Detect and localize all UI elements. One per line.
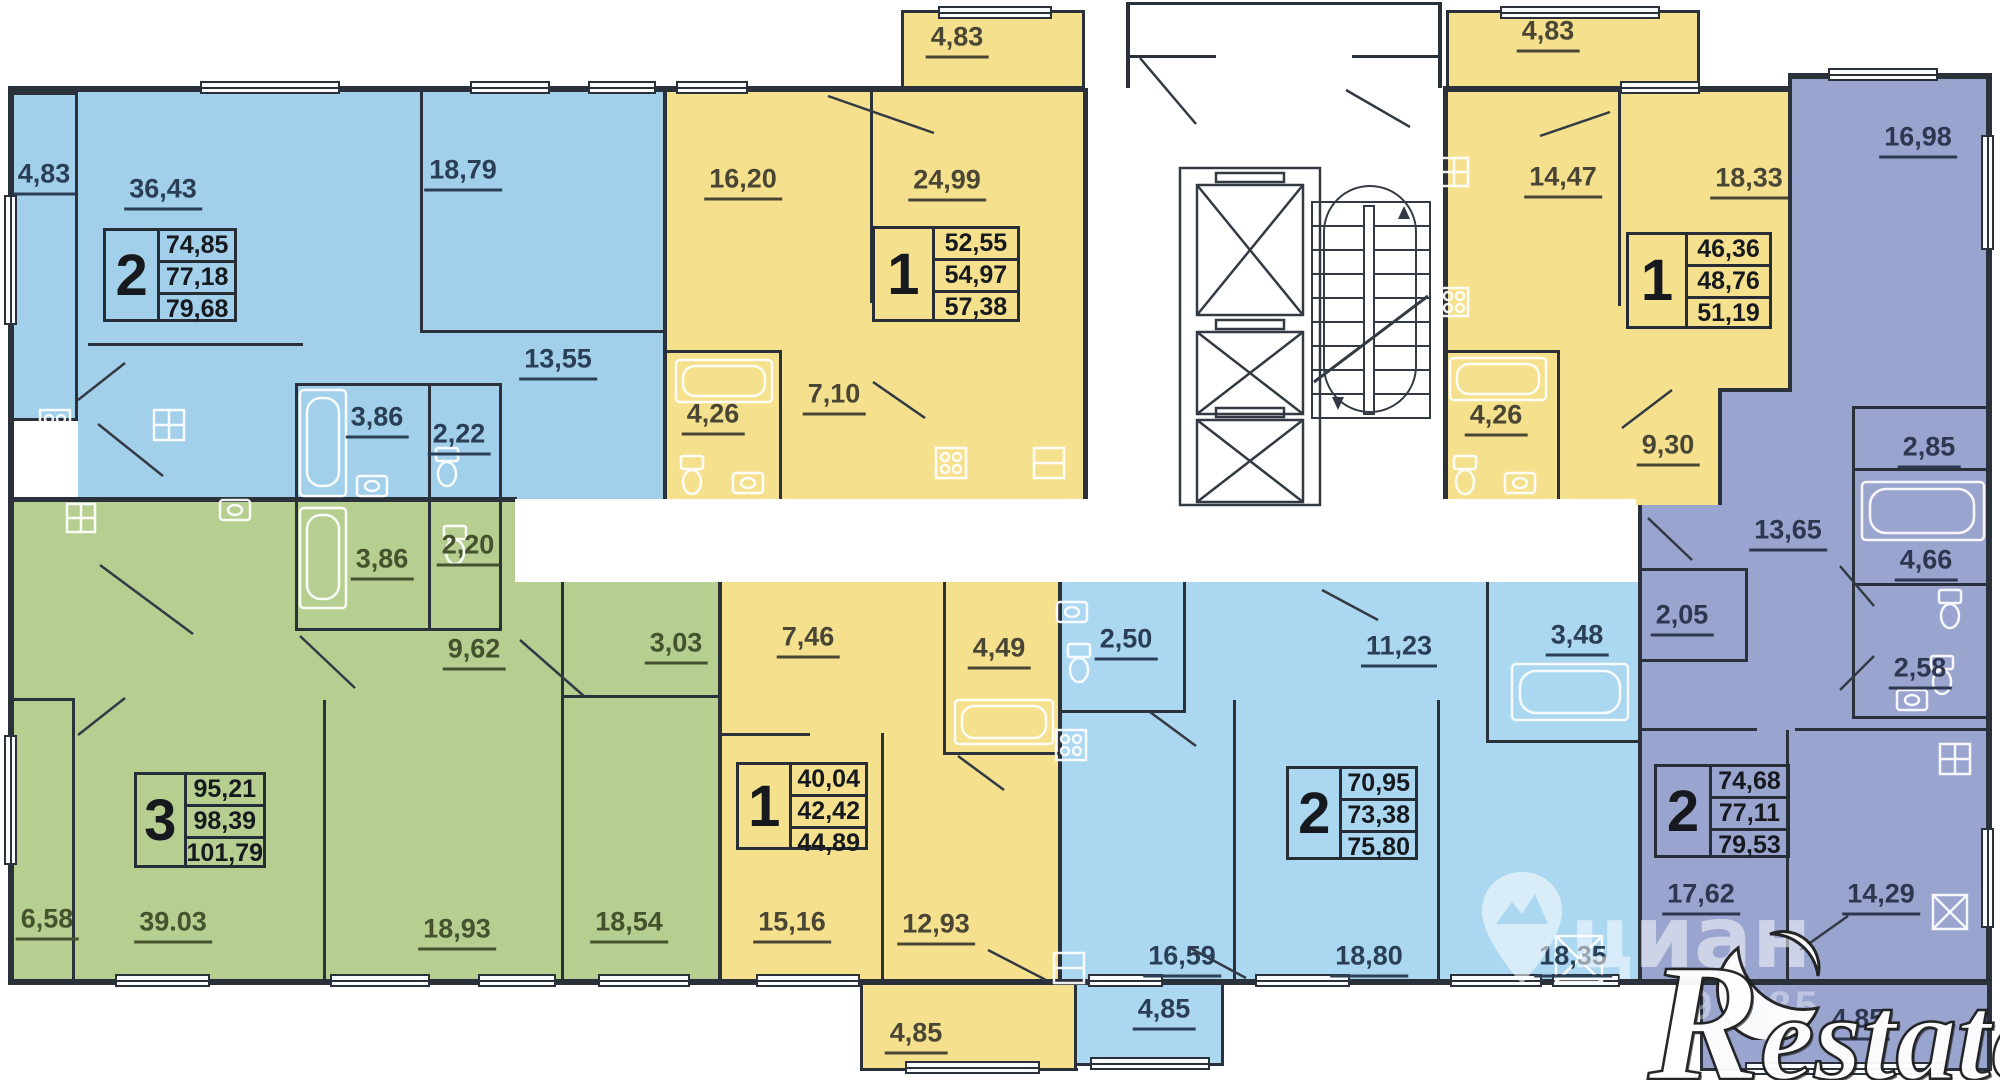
- room-area-label: 3,03: [645, 628, 708, 665]
- stove-icon: [1054, 953, 1084, 983]
- rooms-count: 1: [875, 229, 935, 319]
- room-area-label: 4,83: [1517, 16, 1580, 53]
- area-total: 48,76: [1688, 267, 1769, 299]
- area-full: 51,19: [1688, 299, 1769, 328]
- room-area-label: 3,86: [346, 402, 409, 439]
- elevator-shafts-icon: [1180, 168, 1320, 505]
- sink-icon: [1505, 473, 1535, 493]
- area-total: 77,11: [1712, 799, 1787, 831]
- area-total: 77,18: [160, 263, 234, 295]
- restate-watermark-text: Restate: [1648, 948, 2000, 1080]
- room-area-label: 18,80: [1330, 941, 1408, 978]
- stove-icon: [1440, 158, 1468, 186]
- room-area-label: 2,85: [1898, 432, 1961, 469]
- sink-icon: [1057, 602, 1087, 622]
- room-area-label: 2,05: [1651, 600, 1714, 637]
- toilet-icon: [1939, 590, 1961, 628]
- area-living: 52,55: [935, 229, 1017, 261]
- room-area-label: 9,62: [443, 634, 506, 671]
- apartment-info-box: 2 70,95 73,38 75,80: [1286, 766, 1418, 860]
- room-area-label: 18,33: [1710, 163, 1788, 200]
- sink-icon: [357, 476, 387, 496]
- stove-icon: [1940, 744, 1970, 774]
- room-area-label: 15,16: [753, 907, 831, 944]
- apartment-info-box: 1 52,55 54,97 57,38: [872, 226, 1020, 322]
- room-area-label: 18,93: [418, 914, 496, 951]
- area-living: 95,21: [187, 775, 263, 807]
- room-area-label: 7,46: [777, 622, 840, 659]
- area-full: 101,79: [187, 839, 263, 868]
- stove-icon: [40, 410, 70, 440]
- rooms-count: 2: [1289, 769, 1342, 857]
- room-area-label: 14,29: [1842, 879, 1920, 916]
- room-area-label: 4,85: [885, 1018, 948, 1055]
- cian-pin-icon: [1482, 872, 1562, 993]
- area-living: 74,68: [1712, 767, 1787, 799]
- area-total: 98,39: [187, 807, 263, 839]
- room-area-label: 4,83: [13, 159, 76, 196]
- stove-icon: [936, 448, 966, 478]
- room-area-label: 3,48: [1546, 620, 1609, 657]
- room-area-label: 18,79: [424, 155, 502, 192]
- room-area-label: 12,93: [897, 909, 975, 946]
- room-area-label: 18,54: [590, 907, 668, 944]
- area-living: 40,04: [792, 765, 865, 797]
- area-living: 74,85: [160, 231, 234, 263]
- room-area-label: 13,55: [519, 344, 597, 381]
- apartment-info-box: 1 46,36 48,76 51,19: [1626, 232, 1772, 329]
- room-area-label: 4,26: [1465, 400, 1528, 437]
- room-area-label: 4,83: [926, 22, 989, 59]
- area-full: 75,80: [1342, 833, 1415, 862]
- apartment-info-box: 3 95,21 98,39 101,79: [134, 772, 266, 868]
- room-area-label: 16,20: [704, 164, 782, 201]
- room-area-label: 2,22: [428, 419, 491, 456]
- room-area-label: 4,49: [968, 633, 1031, 670]
- apartment-info-box: 2 74,85 77,18 79,68: [103, 228, 237, 322]
- apartment-info-box: 1 40,04 42,42 44,89: [736, 762, 868, 850]
- room-area-label: 36,43: [124, 174, 202, 211]
- room-area-label: 4,85: [1133, 994, 1196, 1031]
- area-total: 42,42: [792, 797, 865, 829]
- area-full: 44,89: [792, 829, 865, 858]
- stove-icon: [1034, 448, 1064, 478]
- room-area-label: 4,66: [1895, 545, 1958, 582]
- room-area-label: 9,30: [1637, 430, 1700, 467]
- rooms-count: 1: [739, 765, 792, 847]
- stove-icon: [1440, 288, 1468, 316]
- rooms-count: 1: [1629, 235, 1688, 326]
- room-area-label: 2,20: [437, 530, 500, 567]
- room-area-label: 7,10: [803, 379, 866, 416]
- room-area-label: 16,59: [1143, 941, 1221, 978]
- room-area-label: 14,47: [1524, 162, 1602, 199]
- room-area-label: 4,26: [682, 399, 745, 436]
- room-area-label: 24,99: [908, 165, 986, 202]
- area-total: 73,38: [1342, 801, 1415, 833]
- toilet-icon: [1454, 456, 1476, 494]
- area-full: 79,53: [1712, 831, 1787, 860]
- area-living: 70,95: [1342, 769, 1415, 801]
- sink-icon: [1897, 690, 1927, 710]
- room-area-label: 39.03: [134, 907, 212, 944]
- room-area-label: 16,98: [1879, 122, 1957, 159]
- toilet-icon: [681, 456, 703, 494]
- apartment-info-box: 2 74,68 77,11 79,53: [1654, 764, 1790, 858]
- rooms-count: 2: [1657, 767, 1712, 855]
- stove-icon: [154, 410, 184, 440]
- sink-icon: [733, 473, 763, 493]
- staircase-icon: [1312, 186, 1430, 418]
- stove-icon: [67, 504, 95, 532]
- sink-icon: [220, 500, 250, 520]
- room-area-label: 2,50: [1095, 624, 1158, 661]
- room-area-label: 13,65: [1749, 515, 1827, 552]
- rooms-count: 3: [137, 775, 187, 865]
- room-area-label: 2,58: [1889, 653, 1952, 690]
- area-living: 46,36: [1688, 235, 1769, 267]
- room-area-label: 11,23: [1361, 631, 1437, 668]
- hatch-icon: [1933, 895, 1967, 929]
- floor-plan: 4,83 36,43 18,79 13,55 3,86 2,22 4,83 16…: [0, 0, 2000, 1080]
- stove-icon: [1056, 730, 1086, 760]
- rooms-count: 2: [106, 231, 160, 319]
- area-total: 54,97: [935, 261, 1017, 293]
- area-full: 57,38: [935, 293, 1017, 322]
- room-area-label: 3,86: [351, 544, 414, 581]
- room-area-label: 6,58: [16, 904, 79, 941]
- toilet-icon: [1068, 644, 1090, 682]
- area-full: 79,68: [160, 295, 234, 324]
